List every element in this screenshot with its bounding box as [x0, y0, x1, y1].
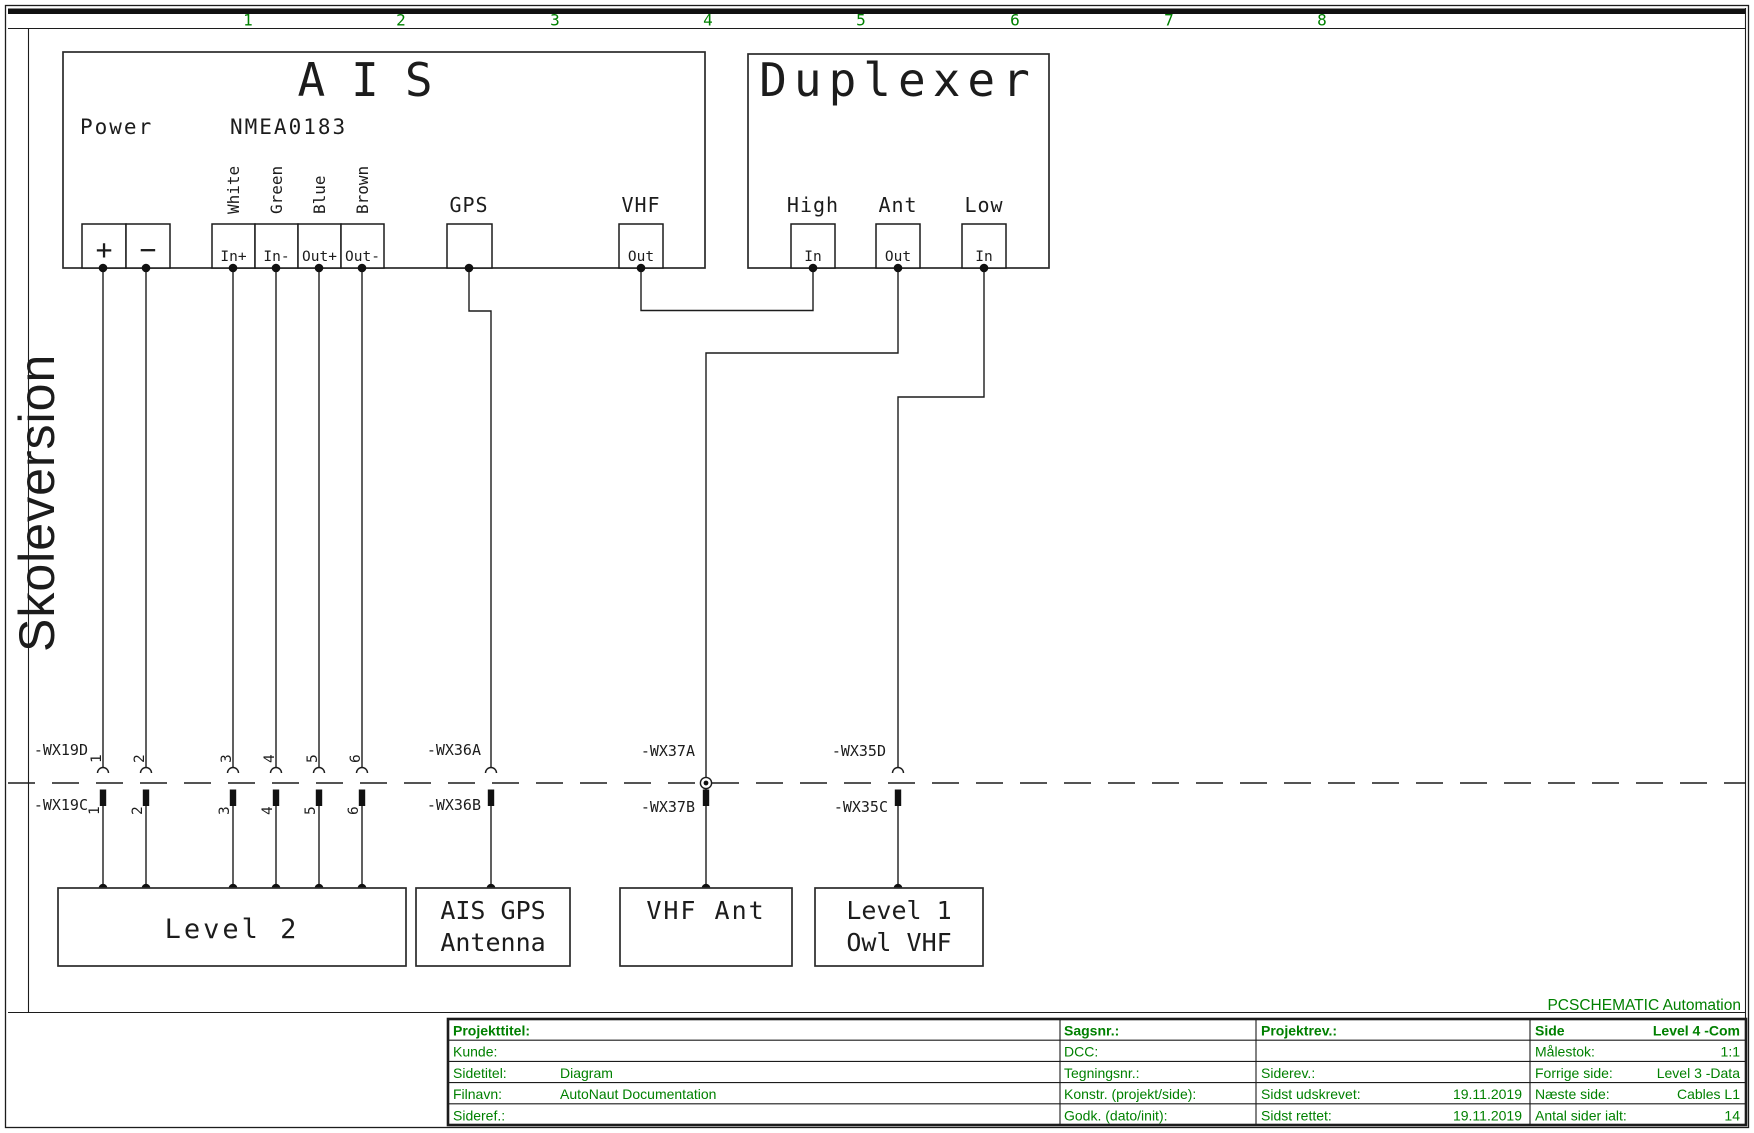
- cable-label-wx37a: -WX37A: [641, 742, 695, 760]
- pin-number-upper: 5: [305, 754, 321, 763]
- ruler-number: 7: [1164, 11, 1174, 30]
- duplexer-high-label: High: [787, 193, 839, 217]
- junction-dot: [315, 264, 324, 273]
- junction-dot: [229, 264, 238, 273]
- pin-contact: [100, 790, 106, 807]
- destination-boxes: Level 2 AIS GPS Antenna VHF Ant Level 1 …: [58, 888, 983, 966]
- pin-number-lower: 4: [260, 806, 276, 815]
- terminal-high-in-label: In: [804, 249, 821, 265]
- pin-contact: [359, 790, 365, 807]
- ais-terminal-gps: [447, 224, 492, 268]
- ais-power-label: Power: [80, 115, 153, 139]
- cable-label-wx35d: -WX35D: [832, 742, 886, 760]
- field-konstr: Konstr. (projekt/side):: [1064, 1086, 1196, 1102]
- wire-gps-upper: [469, 268, 491, 767]
- pin-number-lower: 3: [217, 806, 233, 815]
- cable-label-wx36a: -WX36A: [427, 741, 481, 759]
- junction-dot: [465, 264, 474, 273]
- field-sideref: Sideref.:: [453, 1107, 505, 1123]
- level2-label: Level 2: [165, 914, 300, 945]
- vhf-ant-label: VHF Ant: [646, 896, 765, 925]
- field-godk: Godk. (dato/init):: [1064, 1107, 1168, 1123]
- pin-numbers: 1 2 3 4 5 6 1 2 3 4 5 6: [87, 754, 364, 815]
- ais-vhf-label: VHF: [621, 193, 660, 217]
- pin-number-lower: 1: [87, 806, 103, 815]
- ais-gps-antenna-label-1: AIS GPS: [440, 896, 545, 925]
- ruler-number: 8: [1317, 11, 1327, 30]
- duplexer-component: Duplexer High Ant Low In Out In: [748, 53, 1049, 268]
- junction-dot: [809, 264, 818, 273]
- value-malestok: 1:1: [1721, 1044, 1741, 1060]
- connector-symbols: [98, 768, 904, 807]
- pin-contact: [488, 790, 494, 807]
- field-sidetitel: Sidetitel:: [453, 1065, 507, 1081]
- socket-arc: [271, 768, 282, 774]
- terminal-out-minus-label: Out-: [345, 249, 380, 265]
- pin-number-upper: 1: [89, 754, 105, 763]
- cable-label-wx35c: -WX35C: [834, 798, 888, 816]
- field-antal-sider: Antal sider ialt:: [1535, 1107, 1627, 1123]
- socket-arc: [314, 768, 325, 774]
- value-filnavn: AutoNaut Documentation: [560, 1086, 716, 1102]
- socket-arc: [141, 768, 152, 774]
- value-sidetitel: Diagram: [560, 1065, 613, 1081]
- watermark-text: Skoleversion: [9, 354, 65, 652]
- wire-low-upper: [898, 268, 984, 767]
- terminal-out-plus-label: Out+: [302, 249, 337, 265]
- junction-dot: [272, 264, 281, 273]
- pin-number-upper: 4: [262, 754, 278, 763]
- field-sagsnr: Sagsnr.:: [1064, 1023, 1119, 1039]
- ais-nmea-label: NMEA0183: [230, 115, 347, 139]
- level1-owl-vhf-label-2: Owl VHF: [846, 928, 951, 957]
- field-malestok: Målestok:: [1535, 1044, 1595, 1060]
- coax-bulkhead-dot: [704, 781, 709, 786]
- field-forrige-side: Forrige side:: [1535, 1065, 1613, 1081]
- field-filnavn: Filnavn:: [453, 1086, 502, 1102]
- field-sidst-rettet: Sidst rettet:: [1261, 1107, 1332, 1123]
- pin-contact: [316, 790, 322, 807]
- ais-title: AIS: [297, 53, 458, 107]
- cable-label-wx19c: -WX19C: [34, 796, 88, 814]
- wire-vhf-to-high: [641, 268, 813, 311]
- ruler-number: 5: [856, 11, 866, 30]
- pin-number-upper: 6: [348, 754, 364, 763]
- wire-color-green-label: Green: [267, 166, 286, 214]
- junction-dot: [358, 264, 367, 273]
- field-tegningsnr: Tegningsnr.:: [1064, 1065, 1140, 1081]
- junction-dot: [894, 264, 903, 273]
- socket-arc: [357, 768, 368, 774]
- pin-contact: [230, 790, 236, 807]
- level1-owl-vhf-label-1: Level 1: [846, 896, 951, 925]
- junction-dot: [980, 264, 989, 273]
- terminal-in-minus-label: In-: [263, 249, 289, 265]
- pin-number-upper: 3: [219, 754, 235, 763]
- cable-label-wx37b: -WX37B: [641, 798, 695, 816]
- wire-color-brown-label: Brown: [353, 166, 372, 214]
- ruler-number: 4: [703, 11, 713, 30]
- field-projektrev: Projektrev.:: [1261, 1023, 1337, 1039]
- pin-contact: [895, 790, 901, 807]
- duplexer-ant-label: Ant: [878, 193, 917, 217]
- pin-number-lower: 5: [303, 806, 319, 815]
- value-sidst-udskrevet: 19.11.2019: [1453, 1086, 1522, 1102]
- terminal-minus-label: −: [140, 233, 157, 266]
- terminal-ant-out-label: Out: [885, 249, 911, 265]
- top-thick-bar: [8, 9, 1746, 15]
- socket-arc: [228, 768, 239, 774]
- pin-contact: [703, 790, 709, 807]
- pcschematic-brand: PCSCHEMATIC Automation: [1547, 997, 1741, 1014]
- ruler-number: 2: [396, 11, 406, 30]
- wire-color-blue-label: Blue: [310, 175, 329, 214]
- field-kunde: Kunde:: [453, 1044, 497, 1060]
- terminal-low-in-label: In: [975, 249, 992, 265]
- cable-label-wx36b: -WX36B: [427, 796, 481, 814]
- field-sidst-udskrevet: Sidst udskrevet:: [1261, 1086, 1361, 1102]
- cable-label-wx19d: -WX19D: [34, 741, 88, 759]
- value-naeste-side: Cables L1: [1677, 1086, 1740, 1102]
- pin-number-upper: 2: [132, 754, 148, 763]
- socket-arc: [98, 768, 109, 774]
- field-projekttitel: Projekttitel:: [453, 1023, 530, 1039]
- value-side: Level 4 -Com: [1653, 1023, 1740, 1039]
- schematic-page: 1 2 3 4 5 6 7 8 Skoleversion AIS Power N…: [0, 0, 1754, 1133]
- value-sidst-rettet: 19.11.2019: [1453, 1107, 1522, 1123]
- field-side: Side: [1535, 1023, 1565, 1039]
- value-forrige-side: Level 3 -Data: [1657, 1065, 1740, 1081]
- duplexer-low-label: Low: [964, 193, 1003, 217]
- socket-arc: [486, 768, 497, 774]
- field-dcc: DCC:: [1064, 1044, 1098, 1060]
- title-block: Projekttitel: Kunde: Sidetitel: Diagram …: [448, 1019, 1746, 1125]
- pin-number-lower: 2: [130, 806, 146, 815]
- junction-dot: [142, 264, 151, 273]
- ais-gps-antenna-label-2: Antenna: [440, 928, 545, 957]
- cable-labels: -WX19D -WX19C -WX36A -WX36B -WX37A -WX37…: [34, 741, 888, 816]
- socket-arc: [893, 768, 904, 774]
- wire-color-white-label: White: [224, 166, 243, 214]
- ruler-number: 1: [243, 11, 253, 30]
- junction-dot: [99, 264, 108, 273]
- pin-contact: [143, 790, 149, 807]
- ais-component: AIS Power NMEA0183 White Green Blue Brow…: [63, 52, 705, 268]
- field-siderev: Siderev.:: [1261, 1065, 1315, 1081]
- pin-contact: [273, 790, 279, 807]
- value-antal-sider: 14: [1724, 1107, 1740, 1123]
- terminal-plus-label: +: [96, 233, 113, 266]
- ruler-number: 6: [1010, 11, 1020, 30]
- terminal-vhf-out-label: Out: [628, 249, 654, 265]
- field-naeste-side: Næste side:: [1535, 1086, 1610, 1102]
- terminal-in-plus-label: In+: [220, 249, 246, 265]
- pin-number-lower: 6: [346, 806, 362, 815]
- ais-gps-label: GPS: [449, 193, 488, 217]
- junction-dot: [637, 264, 646, 273]
- ruler-number: 3: [550, 11, 560, 30]
- wire-ant-to-vhfant: [706, 268, 898, 888]
- duplexer-title: Duplexer: [759, 53, 1037, 107]
